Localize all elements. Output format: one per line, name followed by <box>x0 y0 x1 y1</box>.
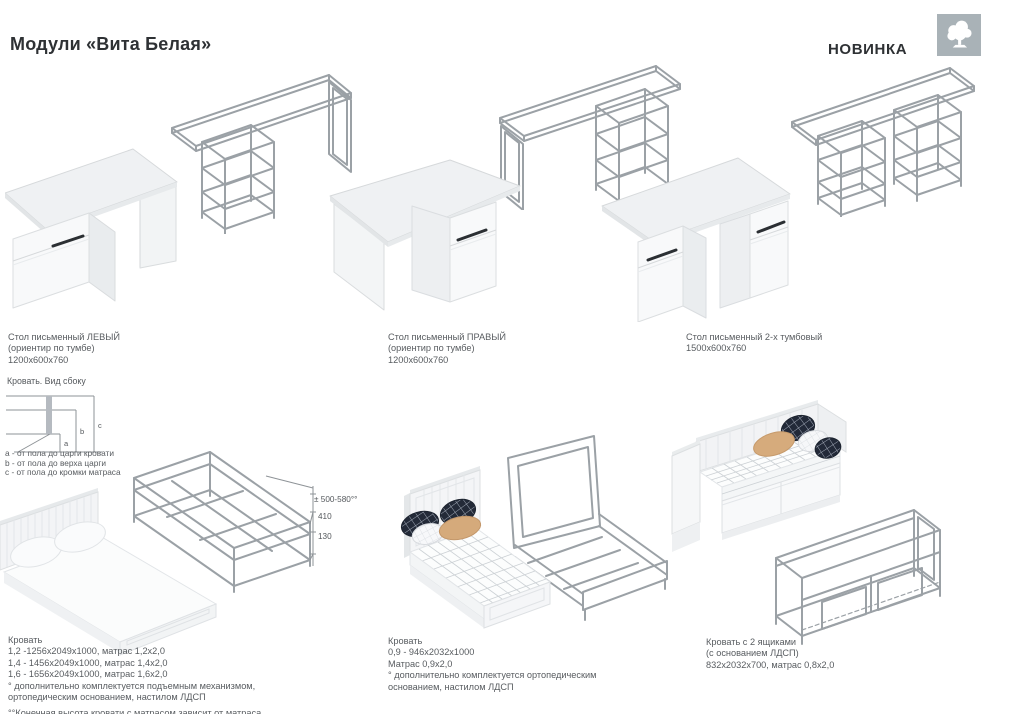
desk-double-name: Стол письменный 2-х тумбовый <box>686 332 822 343</box>
desk-right-name: Стол письменный ПРАВЫЙ <box>388 332 506 343</box>
bed-single-render-image <box>380 462 572 644</box>
bed-double-specs: Кровать 1,2 -1256x2049x1000, матрас 1,2x… <box>8 635 261 714</box>
desk-right-label: Стол письменный ПРАВЫЙ (ориентир по тумб… <box>388 332 506 366</box>
desk-double-wireframe-image <box>788 62 976 217</box>
desk-right-body <box>330 160 520 310</box>
desk-left-note: (ориентир по тумбе) <box>8 343 120 354</box>
bed-single-note-2: основанием, настилом ЛДСП <box>388 682 596 693</box>
dim-label-low: 130 <box>318 532 332 541</box>
desk-left-render <box>5 147 197 319</box>
desk-double-wireframe <box>792 68 974 217</box>
dim-label-c: c <box>98 421 102 430</box>
brand-logo <box>937 14 981 56</box>
legend-line-c: c - от пола до кромки матраса <box>5 468 121 478</box>
bed-double-title: Кровать <box>8 635 261 646</box>
bed-double-render-image <box>0 488 236 658</box>
desk-right-render <box>328 158 523 320</box>
desk-right-note: (ориентир по тумбе) <box>388 343 506 354</box>
catalog-page: Модули «Вита Белая» НОВИНКА <box>0 0 1024 714</box>
dim-label-mid: 410 <box>318 512 332 521</box>
bed-double-footnote: °°Конечная высота кровати с матрасом зав… <box>8 708 261 714</box>
page-title: Модули «Вита Белая» <box>10 34 211 55</box>
side-view-title: Кровать. Вид сбоку <box>7 376 86 386</box>
desk-double-body <box>602 158 790 322</box>
dim-label-range: ± 500-580°° <box>314 495 357 504</box>
bed-drawers-wireframe <box>776 510 940 644</box>
desk-right-render-image <box>328 158 523 320</box>
bed-double-note-1: ° дополнительно комплектуется подъемным … <box>8 681 261 692</box>
bed-single-mattress-size: Матрас 0,9x2,0 <box>388 659 596 670</box>
side-view-lines <box>6 396 102 452</box>
side-view-rail-bar <box>46 396 52 434</box>
dim-label-b: b <box>80 427 84 436</box>
bed-drawers-specs: Кровать с 2 ящиками (с основанием ЛДСП) … <box>706 637 834 671</box>
bed-single-size: 0,9 - 946x2032x1000 <box>388 647 596 658</box>
bed-double-note-2: ортопедическим основанием, настилом ЛДСП <box>8 692 261 703</box>
desk-right-size: 1200x600x760 <box>388 355 506 366</box>
bed-double-size-2: 1,4 - 1456x2049x1000, матрас 1,4x2,0 <box>8 658 261 669</box>
desk-left-size: 1200x600x760 <box>8 355 120 366</box>
desk-double-wireframe-drawing <box>788 62 976 217</box>
desk-left-label: Стол письменный ЛЕВЫЙ (ориентир по тумбе… <box>8 332 120 366</box>
desk-left-body <box>5 149 177 308</box>
desk-double-render-image <box>600 150 796 322</box>
bed-drawers-wireframe-drawing <box>766 490 978 650</box>
side-view-legend: a - от пола до царги кровати b - от пола… <box>5 449 121 478</box>
desk-double-render <box>600 150 796 322</box>
bed-drawers-wireframe-image <box>766 490 978 650</box>
bed-drawers-base: (с основанием ЛДСП) <box>706 648 834 659</box>
bed-double-size-3: 1,6 - 1656x2049x1000, матрас 1,6x2,0 <box>8 669 261 680</box>
bed-drawers-size: 832x2032x700, матрас 0,8x2,0 <box>706 660 834 671</box>
bed-single-title: Кровать <box>388 636 596 647</box>
desk-left-name: Стол письменный ЛЕВЫЙ <box>8 332 120 343</box>
desk-double-size: 1500x600x760 <box>686 343 822 354</box>
bed-drawers-title: Кровать с 2 ящиками <box>706 637 834 648</box>
bed-single-note-1: ° дополнительно комплектуется ортопедиче… <box>388 670 596 681</box>
bed-single-specs: Кровать 0,9 - 946x2032x1000 Матрас 0,9x2… <box>388 636 596 693</box>
bed-double-render <box>0 488 236 658</box>
bed-double-size-1: 1,2 -1256x2049x1000, матрас 1,2x2,0 <box>8 646 261 657</box>
desk-left-wireframe <box>172 75 351 234</box>
new-badge: НОВИНКА <box>828 41 907 58</box>
tree-icon <box>941 18 977 52</box>
dim-label-a: a <box>64 439 69 448</box>
bed-single-render <box>380 462 572 644</box>
desk-left-render-image <box>5 147 197 319</box>
desk-double-label: Стол письменный 2-х тумбовый 1500x600x76… <box>686 332 822 355</box>
